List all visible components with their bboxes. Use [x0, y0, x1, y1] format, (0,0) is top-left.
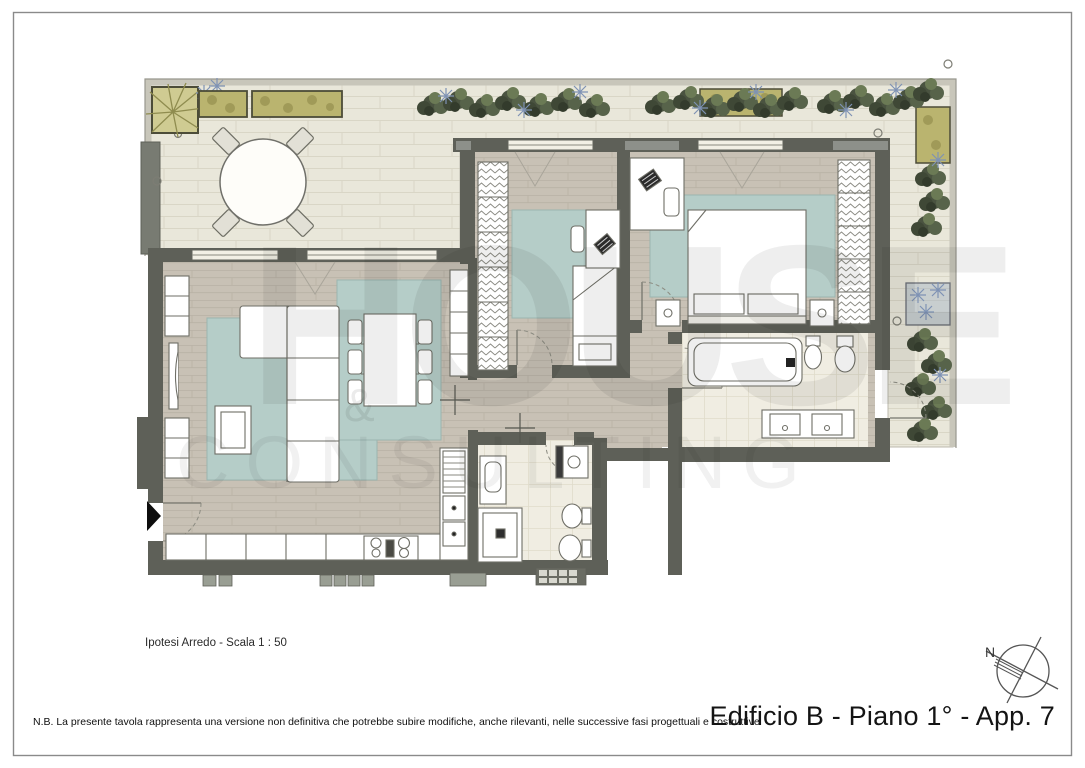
parapet-wall-segment — [141, 142, 160, 254]
double-bed-icon — [688, 210, 806, 324]
wardrobe-icon — [478, 162, 508, 370]
light-well — [607, 448, 662, 575]
bathtub-icon — [688, 338, 802, 386]
disclaimer-note: N.B. La presente tavola rappresenta una … — [33, 716, 760, 728]
toilet-icon — [835, 336, 855, 372]
pillow — [579, 344, 611, 360]
dining-table — [364, 314, 416, 406]
desk-chair — [571, 226, 584, 252]
round-table — [220, 139, 306, 225]
bidet-icon — [805, 336, 822, 369]
drawing-sheet: HOUSE & CONSULTING Ipotesi Arredo - Scal… — [0, 0, 1085, 768]
stove-icon — [364, 536, 418, 560]
bidet-icon — [562, 504, 591, 528]
dining-table-set — [348, 314, 432, 406]
entrance-arrow — [147, 501, 161, 531]
coffee-table-top — [221, 412, 245, 448]
terrace-dining-set — [212, 127, 314, 237]
pillow — [694, 294, 744, 314]
kitchen-counter — [166, 534, 468, 560]
floor-plan-canvas — [0, 0, 1085, 768]
nightstand-icon — [656, 300, 680, 326]
scale-note: Ipotesi Arredo - Scala 1 : 50 — [145, 637, 287, 649]
single-bed-icon — [573, 266, 617, 366]
desk2-chair — [664, 188, 679, 216]
double-vanity-icon — [762, 410, 854, 438]
north-label: N — [985, 644, 995, 660]
sheet-title: Edificio B - Piano 1° - App. 7 — [710, 701, 1055, 732]
side-shelving — [450, 270, 468, 376]
sink-unit — [440, 448, 468, 560]
wardrobe2-icon — [838, 160, 870, 324]
floor-grate — [536, 568, 586, 585]
compass — [986, 637, 1058, 703]
nightstand-icon — [810, 300, 834, 326]
washing-machine-icon — [556, 446, 588, 478]
pillow — [748, 294, 798, 314]
shower-icon — [478, 508, 522, 562]
